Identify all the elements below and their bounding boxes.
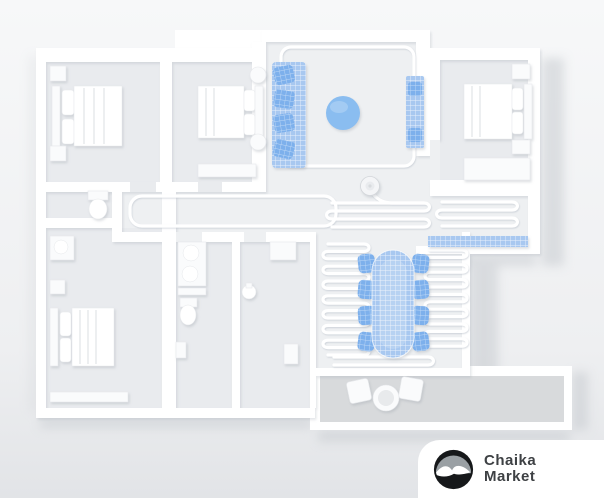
- wall-segment: [262, 30, 430, 42]
- floorplan-render: [0, 0, 604, 498]
- cabinet: [176, 342, 186, 358]
- cabinet: [284, 344, 298, 364]
- dresser: [198, 164, 256, 177]
- washbasin-cabinet: [50, 236, 74, 260]
- round-stool: [250, 134, 266, 150]
- wall-segment: [310, 232, 316, 408]
- wall-segment: [36, 48, 266, 62]
- tv-console: [406, 76, 424, 148]
- balcony-chair: [346, 378, 372, 404]
- hallway-runner-rug: [428, 236, 528, 247]
- balcony-chair: [398, 376, 423, 401]
- toilet: [88, 191, 108, 219]
- sofa: [272, 62, 306, 168]
- kitchen-floor: [240, 242, 310, 408]
- brand-line1: Chaika: [484, 453, 536, 469]
- nightstand: [512, 64, 530, 79]
- wall-segment: [162, 182, 176, 418]
- brand-logo-card: Chaika Market: [418, 440, 604, 498]
- wall-segment: [46, 218, 112, 228]
- nightstand: [50, 146, 66, 161]
- toilet: [180, 298, 197, 325]
- ottoman-pouf: [326, 96, 360, 130]
- kitchen-counter: [270, 242, 296, 260]
- wall-segment: [430, 48, 540, 60]
- wall-segment: [36, 48, 46, 418]
- brand-line2: Market: [484, 469, 536, 485]
- nightstand: [512, 140, 530, 154]
- floorplan-scene: Chaika Market: [0, 0, 604, 498]
- seagull-icon: [433, 449, 474, 490]
- wall-segment: [162, 408, 315, 418]
- wall-segment: [430, 180, 540, 196]
- robot-vacuum: [361, 177, 380, 196]
- shelf: [50, 392, 128, 402]
- wall-segment: [310, 368, 470, 376]
- brand-text: Chaika Market: [484, 453, 536, 485]
- wall-segment: [112, 232, 316, 242]
- closet: [464, 158, 530, 180]
- wall-segment: [36, 408, 162, 418]
- balcony-table: [373, 385, 399, 411]
- round-stool: [250, 67, 266, 83]
- wall-segment: [112, 190, 122, 232]
- nightstand: [50, 280, 65, 294]
- wall-segment: [232, 242, 240, 408]
- nightstand: [50, 66, 66, 81]
- wall-segment: [430, 48, 440, 140]
- wall-segment: [160, 52, 172, 192]
